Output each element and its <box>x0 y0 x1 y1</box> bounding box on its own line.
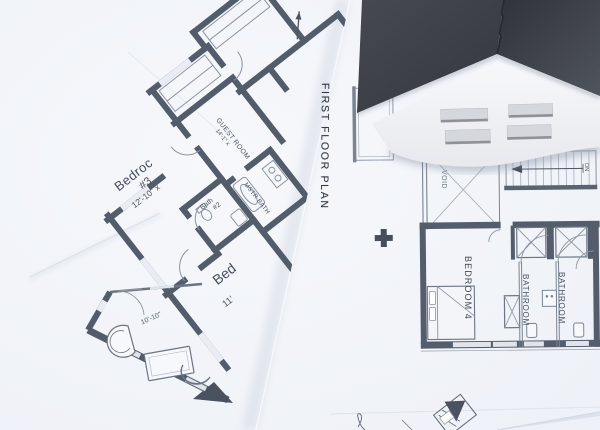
window-slot-icon <box>441 108 488 122</box>
bathroom-fixtures <box>526 290 583 338</box>
paper-house-model <box>357 0 600 167</box>
stairs-dn-label: DN <box>583 163 589 171</box>
void-label: VOID <box>439 170 447 189</box>
plus-wall-symbol-icon <box>375 229 393 247</box>
room-label-bathroom-1: BATHROOM <box>520 274 529 326</box>
sheet-title-first-floor-plan: FIRST FLOOR PLAN <box>318 83 330 210</box>
room-label-bedroom4: BEDROOM 4 <box>462 256 472 320</box>
armchair-icon <box>107 325 135 357</box>
floor-plan-artwork <box>0 0 600 430</box>
window-slot-icon <box>508 103 552 117</box>
closets <box>504 227 588 328</box>
window-slot-icon <box>445 129 490 144</box>
window-slot-icon <box>507 125 551 140</box>
bottom-plan-fragments <box>358 391 477 430</box>
photo-scene: FIRST FLOOR PLAN Bedroc #3 12'-10" x GUE… <box>0 0 600 430</box>
room-label-bathroom-2: BATHROOM <box>556 272 565 324</box>
